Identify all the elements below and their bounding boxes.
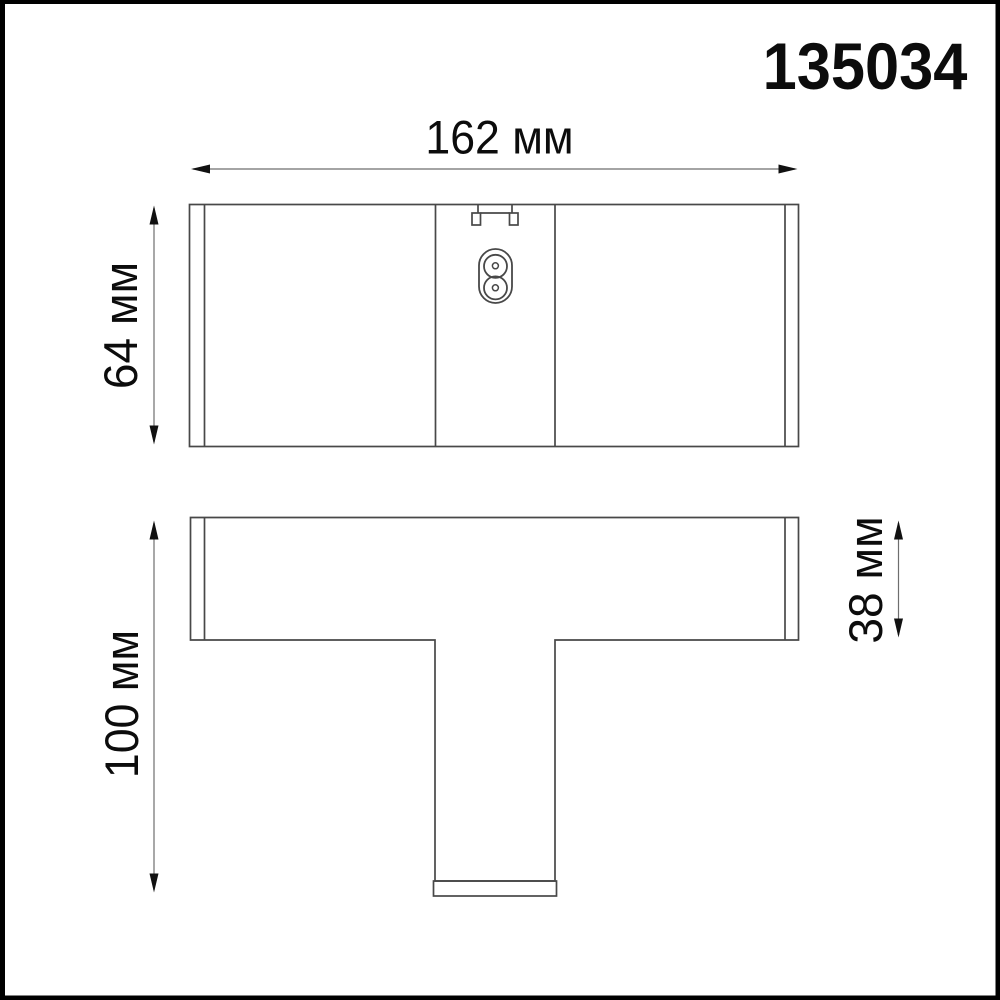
svg-text:135034: 135034 xyxy=(763,29,968,104)
svg-text:162 мм: 162 мм xyxy=(425,111,573,163)
svg-text:100 мм: 100 мм xyxy=(96,630,148,778)
svg-text:38 мм: 38 мм xyxy=(840,516,893,643)
svg-text:64 мм: 64 мм xyxy=(95,262,148,389)
